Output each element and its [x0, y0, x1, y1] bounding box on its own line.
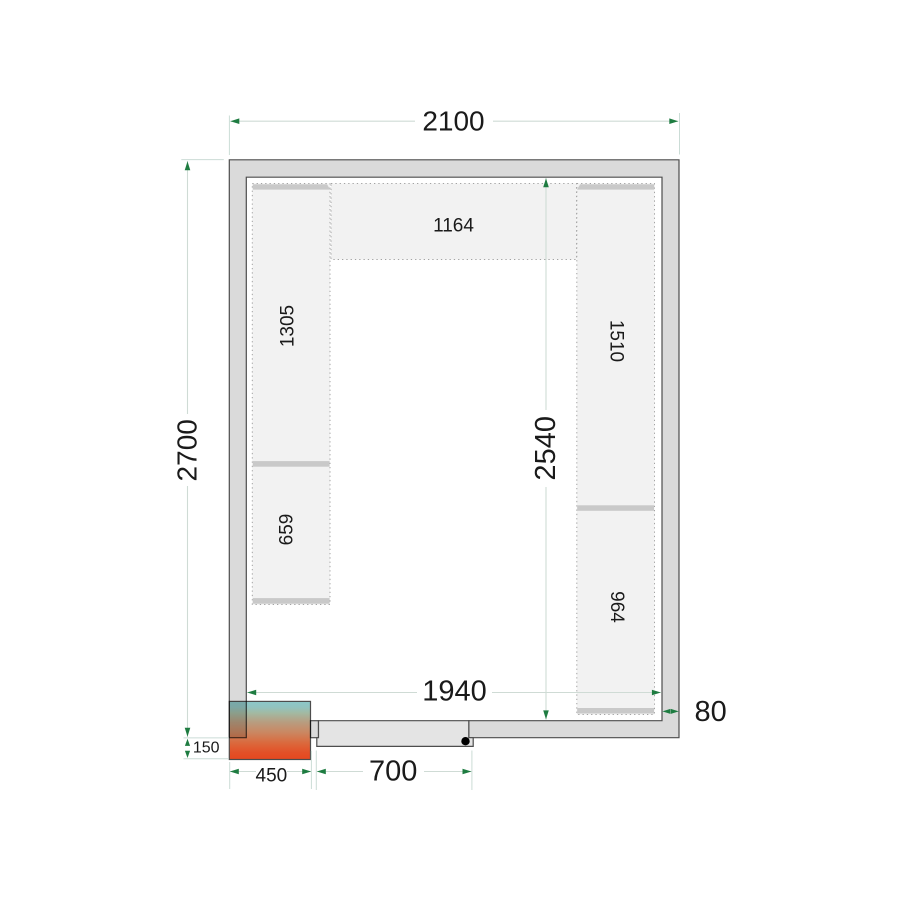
svg-text:1940: 1940: [422, 676, 487, 708]
svg-text:964: 964: [606, 591, 627, 623]
svg-text:80: 80: [694, 696, 726, 728]
svg-text:2700: 2700: [172, 419, 203, 481]
svg-text:1510: 1510: [605, 320, 626, 362]
svg-text:1164: 1164: [433, 216, 474, 237]
svg-text:659: 659: [277, 514, 298, 546]
svg-text:700: 700: [369, 756, 417, 788]
svg-text:150: 150: [193, 739, 220, 756]
svg-text:1305: 1305: [278, 305, 299, 347]
svg-text:2100: 2100: [422, 106, 484, 137]
svg-text:450: 450: [256, 765, 288, 786]
svg-text:2540: 2540: [530, 416, 562, 481]
